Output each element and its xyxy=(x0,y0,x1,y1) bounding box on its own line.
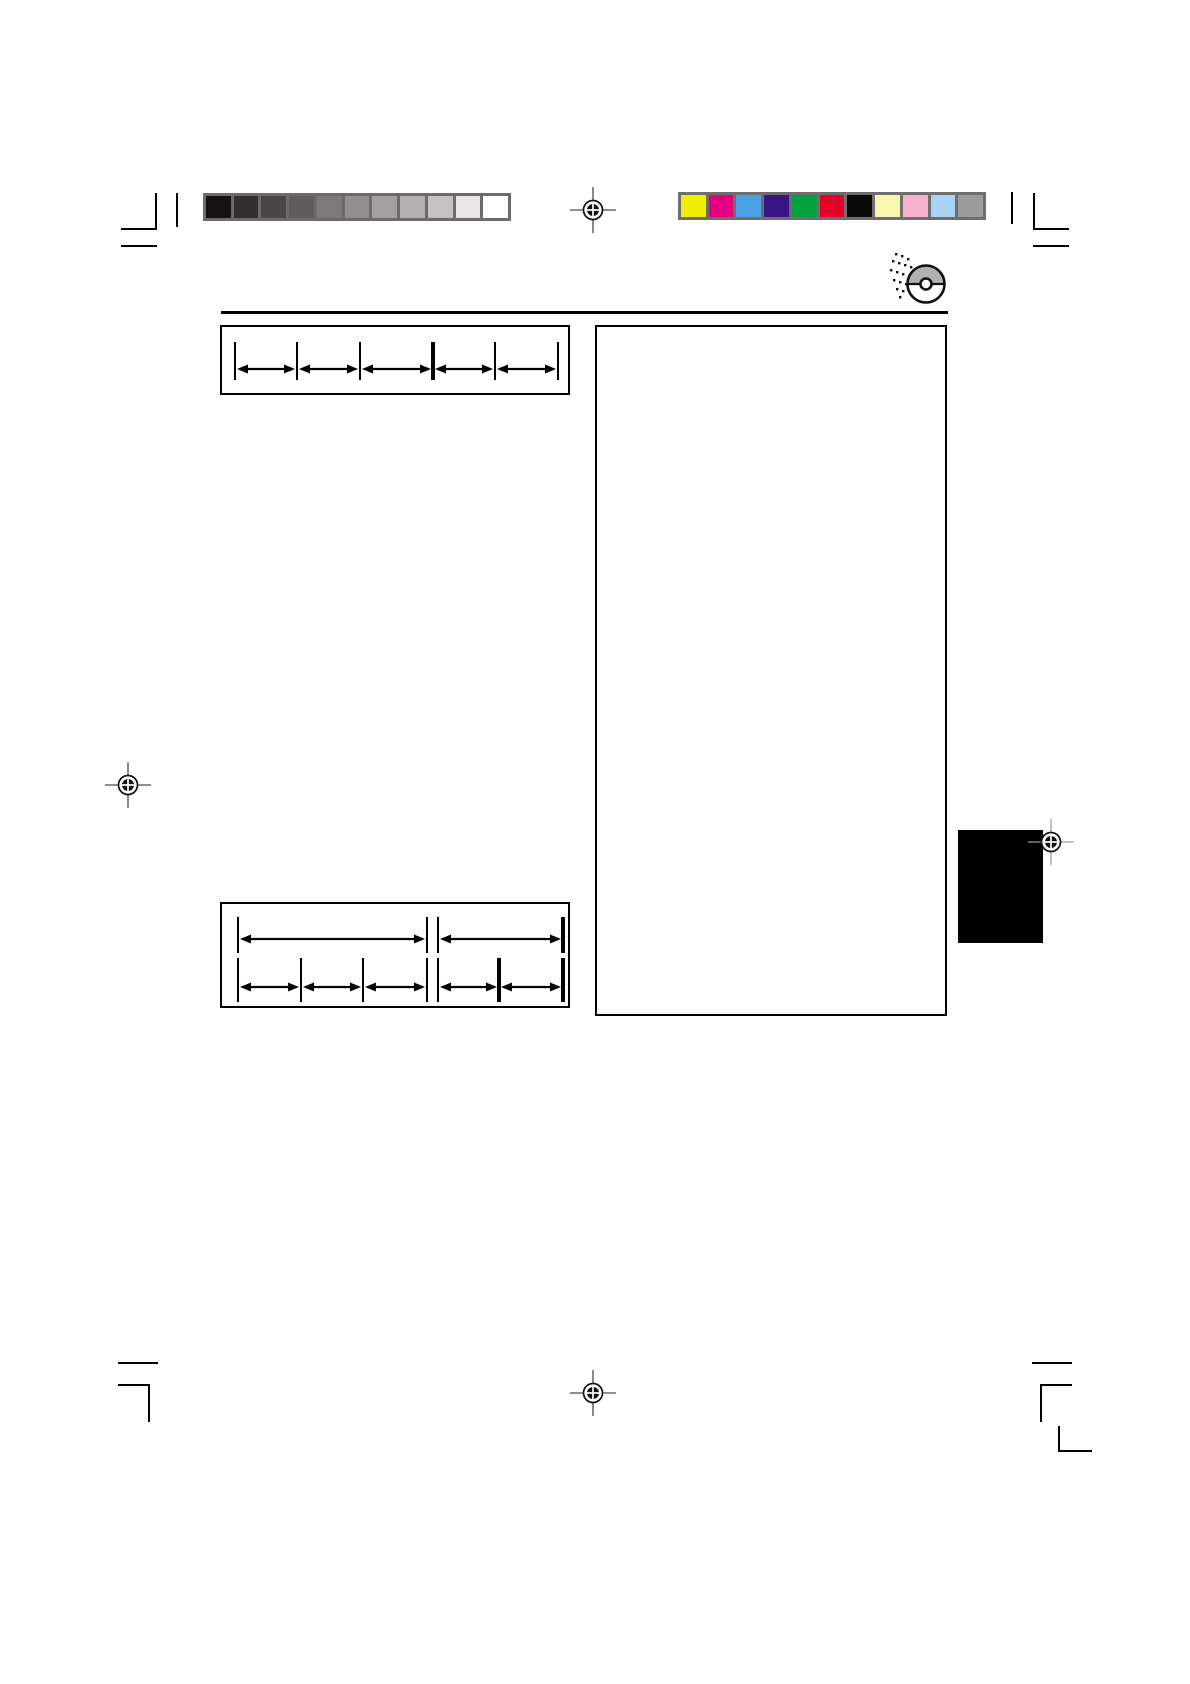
calibration-swatch xyxy=(820,195,845,217)
content-box xyxy=(595,325,947,1016)
calibration-swatch xyxy=(261,196,286,218)
calibration-swatch xyxy=(709,195,734,217)
interval-diagram xyxy=(222,904,568,1006)
calibration-swatch xyxy=(764,195,789,217)
crop-mark xyxy=(1033,228,1069,230)
calibration-swatch xyxy=(847,195,872,217)
crop-mark xyxy=(1040,1384,1072,1386)
registration-mark-icon xyxy=(1027,818,1075,866)
crop-mark xyxy=(1033,193,1035,229)
crop-mark xyxy=(1058,1450,1092,1452)
crop-mark xyxy=(148,1384,150,1422)
crop-mark xyxy=(1033,245,1069,247)
registration-mark-icon xyxy=(569,1369,617,1417)
calibration-swatch xyxy=(456,196,481,218)
calibration-swatch xyxy=(736,195,761,217)
cd-icon xyxy=(888,250,948,306)
crop-mark xyxy=(155,193,157,229)
section-rule xyxy=(221,311,948,314)
calibration-swatch xyxy=(289,196,314,218)
crop-mark xyxy=(118,1384,150,1386)
registration-mark-icon xyxy=(569,186,617,234)
calibration-swatch xyxy=(931,195,956,217)
calibration-swatch xyxy=(483,196,508,218)
calibration-swatch xyxy=(428,196,453,218)
crop-mark xyxy=(121,228,157,230)
calibration-swatch xyxy=(875,195,900,217)
calibration-swatch xyxy=(234,196,259,218)
color-calibration-bar xyxy=(678,192,986,220)
crop-mark xyxy=(1032,1362,1072,1364)
crop-mark xyxy=(1058,1426,1060,1452)
calibration-swatch xyxy=(958,195,983,217)
crop-mark xyxy=(1011,192,1013,224)
scanned-page xyxy=(0,0,1190,1684)
interval-diagram-box-bottom xyxy=(220,902,570,1008)
calibration-swatch xyxy=(372,196,397,218)
crop-mark xyxy=(176,193,178,227)
interval-diagram xyxy=(222,327,568,393)
registration-mark-icon xyxy=(104,761,152,809)
calibration-swatch xyxy=(206,196,231,218)
crop-mark xyxy=(1040,1384,1042,1422)
calibration-swatch xyxy=(317,196,342,218)
calibration-swatch xyxy=(400,196,425,218)
calibration-swatch xyxy=(903,195,928,217)
crop-mark xyxy=(118,1362,158,1364)
calibration-swatch xyxy=(681,195,706,217)
calibration-swatch xyxy=(792,195,817,217)
grayscale-calibration-bar xyxy=(203,193,511,221)
interval-diagram-box-top xyxy=(220,325,570,395)
crop-mark xyxy=(121,245,157,247)
calibration-swatch xyxy=(345,196,370,218)
